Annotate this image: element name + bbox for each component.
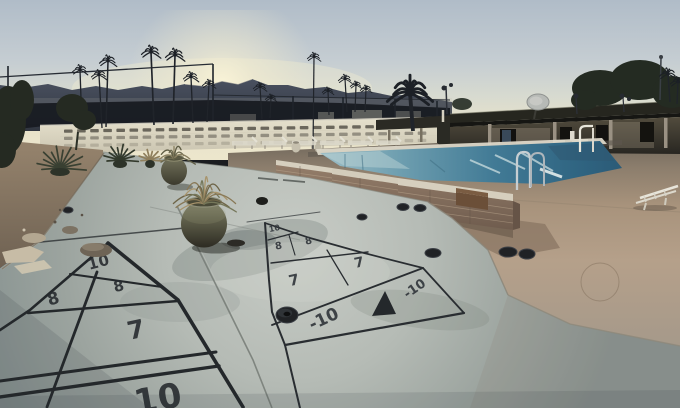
distant-building — [230, 114, 256, 121]
wall-slot — [64, 137, 73, 140]
wall-slot — [352, 125, 361, 128]
distant-building — [318, 112, 334, 119]
rock — [62, 226, 78, 234]
wall-slot — [378, 132, 387, 135]
rock — [22, 233, 46, 243]
deck-drain — [357, 214, 367, 220]
wall-slot — [182, 135, 191, 138]
wall-slot — [234, 127, 243, 130]
wall-slot — [116, 129, 125, 132]
shuffleboard-disc — [276, 307, 298, 323]
scene-canvas: 10 8 8 7 10 10 8 8 7 7 -10 -10 — [0, 0, 680, 408]
wall-slot — [195, 128, 204, 131]
deck-drain — [499, 247, 517, 257]
wall-slot — [326, 126, 335, 129]
wall-slot — [195, 142, 204, 145]
wall-slot — [365, 132, 374, 135]
deck-drain — [414, 205, 426, 212]
wall-slot — [392, 132, 401, 135]
wall-slot — [247, 127, 256, 130]
pavilion-post — [664, 118, 668, 148]
wall-slot — [77, 144, 86, 147]
wall-slot — [169, 142, 178, 145]
wall-slot — [274, 126, 283, 129]
wall-slot — [64, 129, 73, 132]
brick-wall-end — [513, 201, 520, 230]
wall-slot — [287, 133, 296, 136]
wall-slot — [169, 135, 178, 138]
wall-slot — [116, 136, 125, 139]
wall-slot — [143, 136, 152, 139]
wall-slot — [156, 128, 165, 131]
wall-slot — [90, 143, 99, 146]
deck-drain — [425, 249, 441, 258]
wall-slot — [195, 135, 204, 138]
wall-slot — [313, 126, 322, 129]
wall-slot — [130, 143, 139, 146]
wall-slot — [130, 136, 139, 139]
photo-shuffleboard-pool-dusk: 10 8 8 7 10 10 8 8 7 7 -10 -10 — [0, 0, 680, 408]
wall-slot — [300, 133, 309, 136]
dark-object — [256, 197, 268, 205]
wall-slot — [313, 133, 322, 136]
wall-slot — [208, 127, 217, 130]
wall-slot — [208, 142, 217, 145]
wall-slot — [221, 142, 230, 145]
wall-slot — [143, 128, 152, 131]
wall-slot — [90, 136, 99, 139]
wall-slot — [156, 135, 165, 138]
deck-drain — [519, 249, 535, 259]
fallen-leaves — [227, 240, 245, 247]
wall-slot — [221, 134, 230, 137]
wall-slot — [274, 134, 283, 137]
wall-slot — [221, 127, 230, 130]
wall-slot — [234, 134, 243, 137]
distant-building — [352, 110, 382, 118]
wall-slot — [103, 143, 112, 146]
wall-slot — [103, 129, 112, 132]
wall-slot — [182, 128, 191, 131]
wall-slot — [339, 133, 348, 136]
poster — [502, 130, 511, 142]
distant-building — [395, 111, 421, 118]
wall-slot — [287, 126, 296, 129]
wall-slot — [261, 134, 270, 137]
wall-slot — [208, 135, 217, 138]
wall-slot — [247, 134, 256, 137]
wall-slot — [405, 132, 414, 135]
wall-slot — [103, 136, 112, 139]
doorway — [640, 122, 654, 142]
wall-slot — [169, 128, 178, 131]
wall-slot — [156, 143, 165, 146]
wall-slot — [352, 132, 361, 135]
wall-slot — [261, 127, 270, 130]
wall-slot — [182, 142, 191, 145]
wall-slot — [143, 143, 152, 146]
wall-slot — [365, 125, 374, 128]
deck-drain — [397, 204, 409, 211]
wall-slot — [90, 129, 99, 132]
wall-slot — [130, 128, 139, 131]
wall-slot — [300, 126, 309, 129]
wall-slot — [339, 125, 348, 128]
wall-slot — [326, 133, 335, 136]
wall-slot — [405, 139, 414, 142]
